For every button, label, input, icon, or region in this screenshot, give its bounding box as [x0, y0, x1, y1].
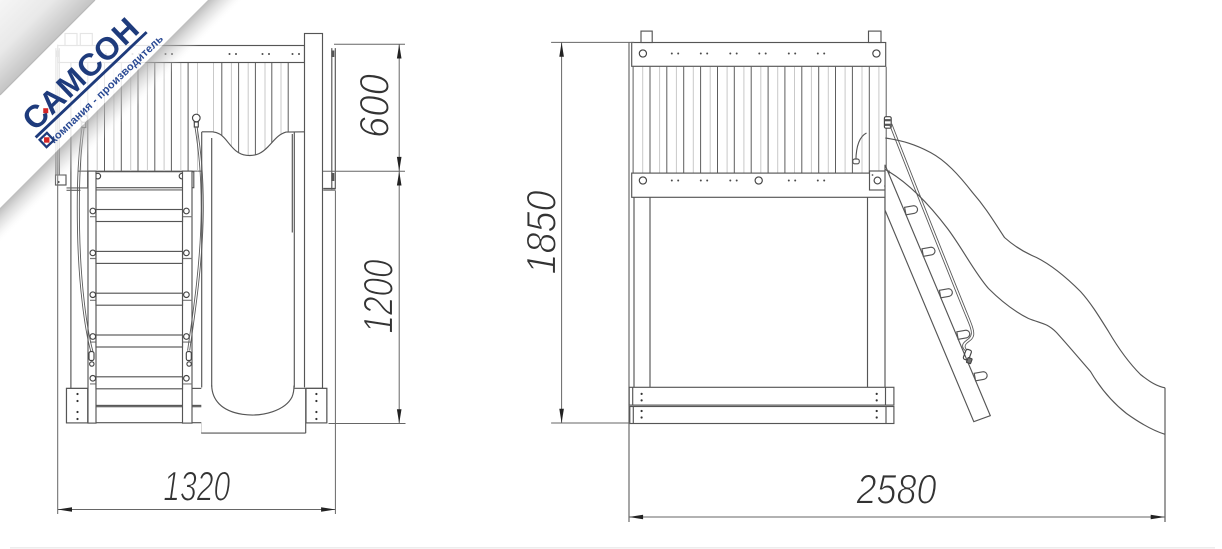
- svg-text:600: 600: [351, 74, 398, 139]
- svg-text:1850: 1850: [518, 190, 565, 275]
- svg-text:1200: 1200: [355, 259, 402, 334]
- svg-text:1320: 1320: [163, 463, 230, 510]
- svg-text:2580: 2580: [856, 466, 937, 513]
